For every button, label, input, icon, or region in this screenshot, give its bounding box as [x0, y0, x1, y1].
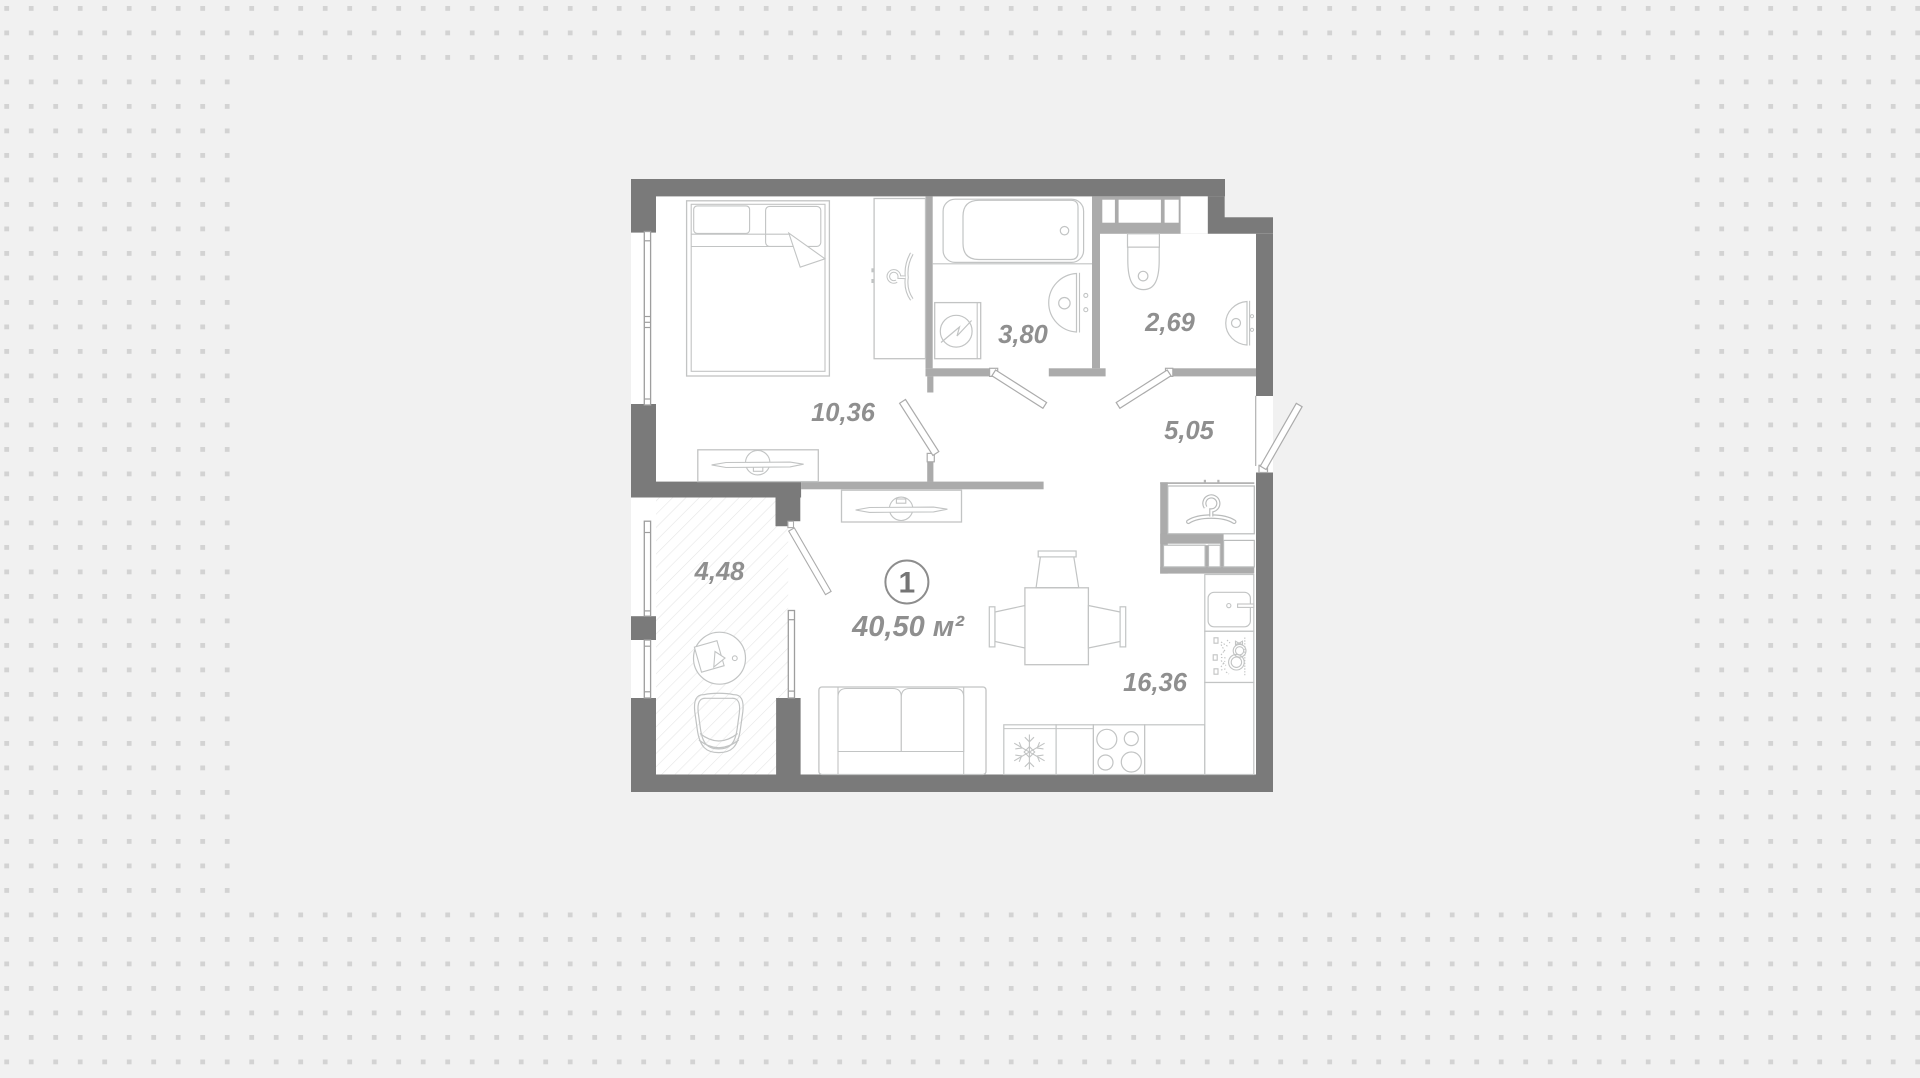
svg-text:16,36: 16,36 — [1123, 669, 1188, 697]
svg-text:5,05: 5,05 — [1164, 417, 1214, 445]
svg-text:10,36: 10,36 — [811, 399, 876, 427]
svg-text:3,80: 3,80 — [998, 321, 1048, 349]
svg-text:1: 1 — [899, 567, 916, 600]
svg-text:2,69: 2,69 — [1144, 309, 1195, 337]
svg-text:4,48: 4,48 — [694, 558, 745, 586]
svg-text:40,50 м²: 40,50 м² — [851, 611, 965, 643]
